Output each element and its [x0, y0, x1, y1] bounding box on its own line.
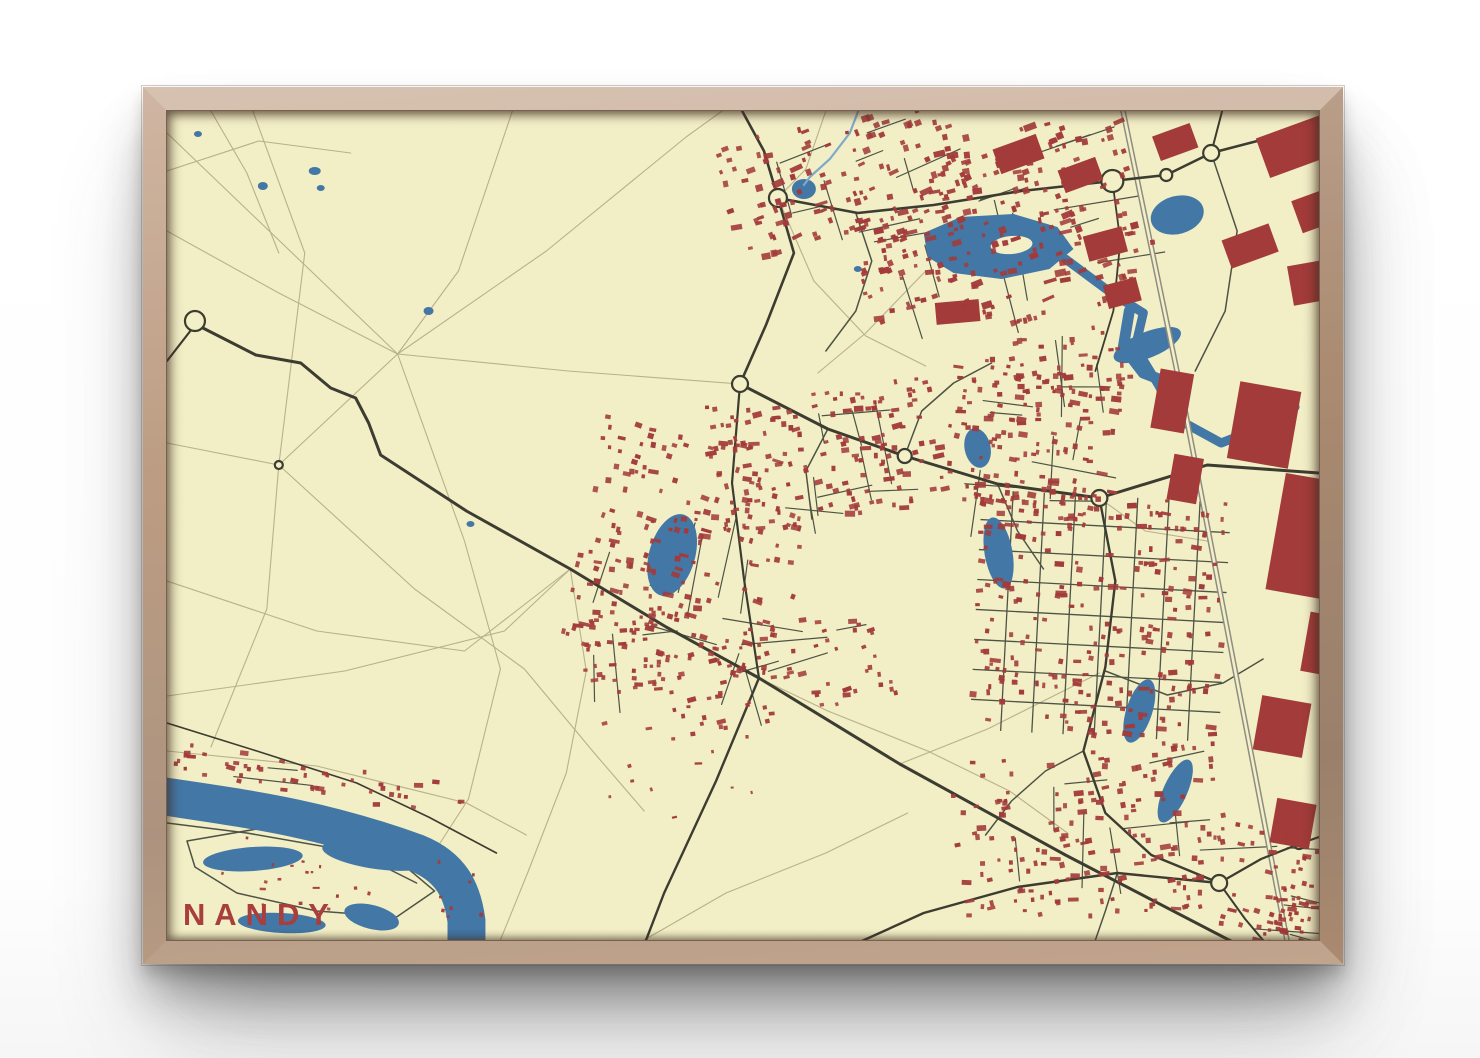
map-surface: NANDY [166, 110, 1320, 941]
wall-background: NANDY [0, 0, 1480, 1058]
poster-frame: NANDY [143, 87, 1343, 964]
map-title: NANDY [183, 897, 338, 932]
map-svg: NANDY [167, 111, 1319, 940]
map-layers [167, 111, 1319, 940]
